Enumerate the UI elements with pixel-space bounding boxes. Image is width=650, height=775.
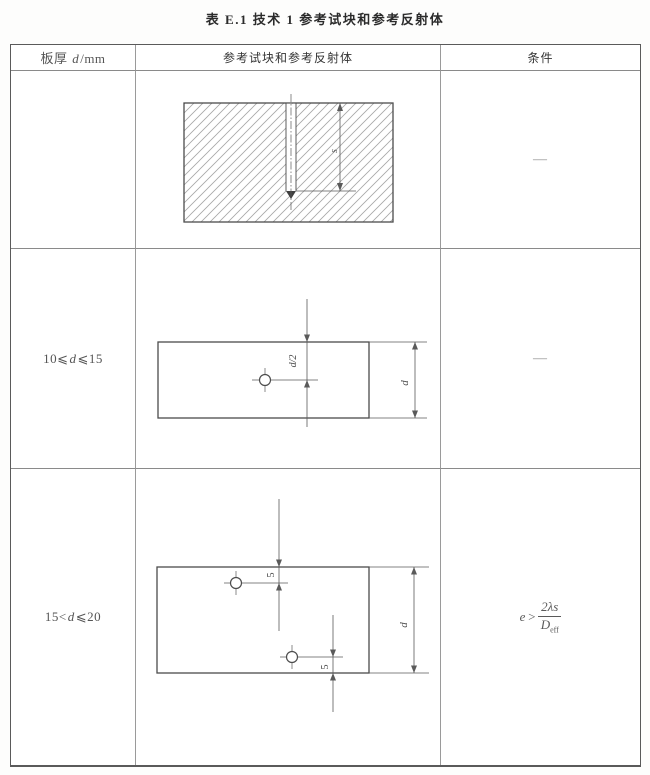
formula-lhs: e bbox=[520, 609, 526, 625]
header-condition-label: 条件 bbox=[527, 49, 553, 66]
row3-condition-cell: e>2λsDeff bbox=[441, 469, 640, 765]
row1-thickness-cell bbox=[11, 71, 136, 249]
page-title: 表 E.1 技术 1 参考试块和参考反射体 bbox=[0, 9, 650, 28]
arrow-down-icon bbox=[276, 560, 282, 568]
formula-relation: > bbox=[527, 609, 536, 625]
row2-thickness-cell: 10⩽d⩽15 bbox=[11, 249, 136, 469]
arrow-up-icon bbox=[330, 673, 336, 681]
header-reference-label: 参考试块和参考反射体 bbox=[223, 49, 353, 66]
row3-thickness-cell: 15<d⩽20 bbox=[11, 469, 136, 765]
formula-fraction: 2λsDeff bbox=[538, 600, 561, 635]
row2-condition-cell: — bbox=[441, 249, 640, 469]
header-cell-thickness: 板厚 d/mm bbox=[11, 45, 136, 71]
bottom-side-drilled-hole bbox=[287, 652, 298, 663]
condition-formula: e>2λsDeff bbox=[520, 600, 562, 635]
row1-drawing-cell: s bbox=[136, 71, 441, 249]
double-hole-plate-drawing: 5 5 d bbox=[136, 469, 440, 765]
arrow-up-icon bbox=[276, 583, 282, 591]
top-side-drilled-hole bbox=[231, 578, 242, 589]
formula-denominator: Deff bbox=[541, 617, 559, 635]
row1-condition-dash: — bbox=[533, 152, 548, 168]
bottom-offset-label: 5 bbox=[320, 665, 331, 670]
offset-dimension-label: d/2 bbox=[288, 354, 299, 367]
row2-thickness-label: 10⩽d⩽15 bbox=[43, 351, 103, 367]
row3-thickness-label: 15<d⩽20 bbox=[45, 609, 101, 625]
top-offset-label: 5 bbox=[266, 573, 277, 578]
depth-dimension-label: s bbox=[329, 148, 340, 152]
flat-bottom-hole-block-drawing: s bbox=[136, 71, 440, 249]
arrow-up-icon bbox=[412, 342, 418, 350]
arrow-down-icon bbox=[411, 666, 417, 674]
header-thickness-label: 板厚 d/mm bbox=[40, 48, 105, 67]
arrow-down-icon bbox=[304, 334, 310, 342]
side-drilled-hole bbox=[260, 374, 271, 385]
thickness-dimension-label: d bbox=[398, 622, 410, 628]
row2-drawing-cell: d/2 d bbox=[136, 249, 441, 469]
arrow-down-icon bbox=[330, 650, 336, 658]
header-cell-condition: 条件 bbox=[441, 45, 640, 71]
row1-condition-cell: — bbox=[441, 71, 640, 249]
single-hole-plate-drawing: d/2 d bbox=[136, 249, 440, 469]
formula-numerator: 2λs bbox=[538, 600, 561, 617]
row2-condition-dash: — bbox=[533, 351, 548, 367]
arrow-down-icon bbox=[412, 410, 418, 418]
header-cell-reference: 参考试块和参考反射体 bbox=[136, 45, 441, 71]
arrow-up-icon bbox=[304, 380, 310, 388]
thickness-dimension-label: d bbox=[399, 379, 411, 385]
row3-drawing-cell: 5 5 d bbox=[136, 469, 441, 765]
reference-table: 板厚 d/mm 参考试块和参考反射体 条件 s — bbox=[10, 44, 641, 767]
arrow-up-icon bbox=[411, 567, 417, 575]
